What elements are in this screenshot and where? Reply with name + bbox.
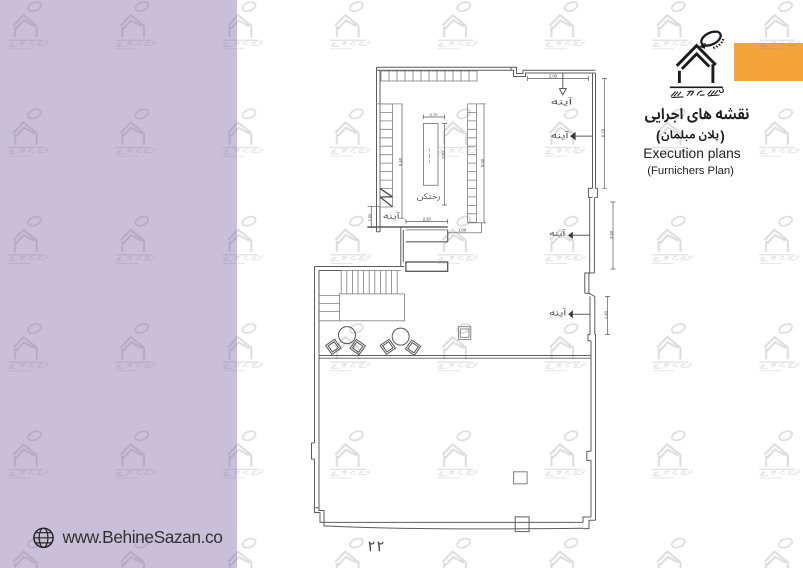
svg-text:2.60: 2.60	[440, 150, 445, 159]
svg-text:): )	[720, 129, 724, 144]
svg-text:5.00: 5.00	[480, 158, 485, 167]
svg-text:(: (	[656, 129, 661, 144]
svg-text:1.00: 1.00	[458, 228, 467, 233]
svg-text:0.70: 0.70	[430, 112, 439, 117]
svg-text:(Furnichers Plan): (Furnichers Plan)	[647, 165, 734, 177]
svg-text:1.00: 1.00	[367, 213, 372, 222]
svg-text:2.10: 2.10	[423, 216, 432, 221]
svg-text:6.20: 6.20	[600, 128, 605, 137]
svg-text:3.50: 3.50	[609, 230, 614, 239]
svg-text:1.40: 1.40	[603, 310, 608, 319]
svg-text:2.00: 2.00	[549, 74, 558, 79]
svg-text:Execution plans: Execution plans	[643, 146, 741, 161]
svg-text:5.40: 5.40	[398, 157, 403, 166]
